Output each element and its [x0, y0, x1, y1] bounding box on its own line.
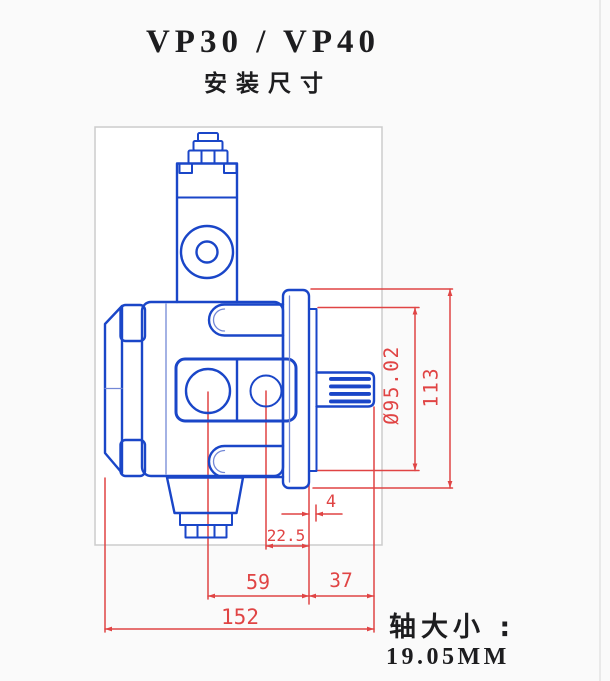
dim-pilot-protrusion: 4: [326, 492, 336, 512]
arrow: [309, 594, 316, 599]
arrow: [367, 594, 374, 599]
dim-overall-length: 152: [221, 605, 259, 629]
arrow: [367, 627, 374, 632]
shaft-size-label: 轴大小 :: [389, 605, 515, 644]
page: VP30 / VP40 安装尺寸: [0, 0, 610, 681]
shaft-size-value: 19.05MM: [386, 644, 510, 671]
arrow: [448, 481, 453, 488]
arrow: [302, 594, 309, 599]
shaft-spline: [329, 400, 371, 404]
shaft-spline: [329, 385, 371, 389]
shaft-spline: [329, 392, 371, 396]
dim-center-to-face: 59: [246, 570, 270, 594]
arrow: [413, 464, 418, 471]
dim-port-to-face: 22.5: [267, 526, 306, 545]
shaft-spline: [329, 377, 371, 381]
dim-flange-height: 113: [420, 366, 443, 407]
arrow: [208, 594, 215, 599]
arrow: [413, 308, 418, 315]
dim-pilot-diameter: Ø95.02: [380, 345, 403, 424]
arrow: [448, 289, 453, 296]
arrow: [105, 627, 112, 632]
dim-shaft-extension: 37: [329, 569, 352, 592]
pump-technical-drawing: Ø95.02 113 4 22.5 59 37 152: [0, 0, 610, 681]
